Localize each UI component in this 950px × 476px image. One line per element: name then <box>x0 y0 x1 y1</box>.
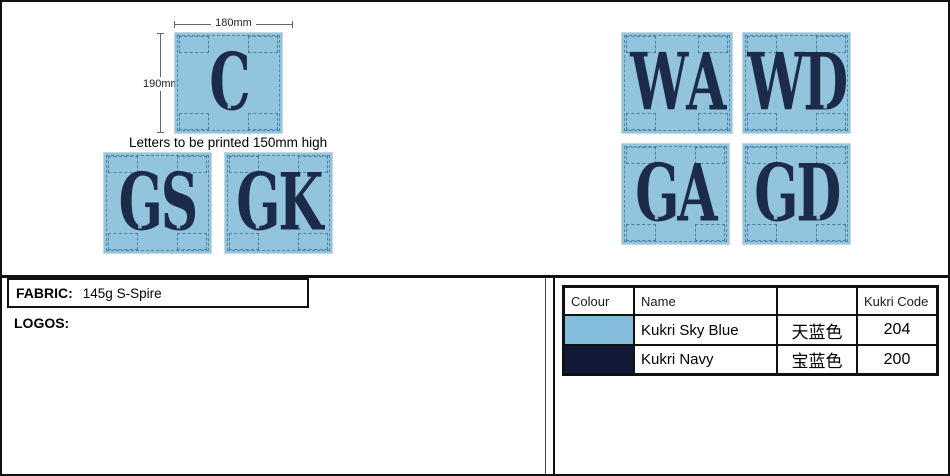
width-dimension-label: 180mm <box>211 17 256 29</box>
fabric-box: FABRIC: 145g S-Spire <box>7 278 309 308</box>
velcro-tab <box>248 113 278 130</box>
table-header-kukri-code: Kukri Code <box>857 287 937 315</box>
velcro-tab <box>179 36 209 53</box>
bib-letters-wd: WD <box>747 30 846 136</box>
bib-letters-wa: WA <box>630 30 724 136</box>
colour-code: 204 <box>857 315 937 345</box>
dimension-tick <box>174 21 175 28</box>
bib-c: C <box>175 33 282 133</box>
bib-gk: GK <box>225 153 332 253</box>
table-header-name: Name <box>634 287 777 315</box>
bib-wd: WD <box>743 33 850 133</box>
fabric-value: 145g S-Spire <box>83 286 162 301</box>
bib-letters-gs: GS <box>119 150 196 256</box>
height-dimension: 190mm <box>152 33 170 133</box>
bib-gs: GS <box>104 153 211 253</box>
section-vertical-line <box>553 278 555 474</box>
dimension-tick <box>157 132 164 133</box>
bib-letters-gk: GK <box>236 150 321 256</box>
colour-name: Kukri Sky Blue <box>634 315 777 345</box>
table-header-chinese <box>777 287 857 315</box>
table-header-colour: Colour <box>564 287 634 315</box>
section-vertical-line <box>545 278 546 474</box>
velcro-tab <box>179 113 209 130</box>
colour-name-chinese: 天蓝色 <box>777 315 857 345</box>
bib-ga: GA <box>622 144 729 244</box>
print-note: Letters to be printed 150mm high <box>129 135 327 150</box>
fabric-label: FABRIC: <box>16 285 73 301</box>
logos-label: LOGOS: <box>14 315 69 331</box>
velcro-tab <box>248 36 278 53</box>
swatch-navy <box>564 345 634 374</box>
bib-letters-ga: GA <box>635 141 715 247</box>
spec-sheet: 180mm 190mm C Letters to be printed 150m… <box>0 0 950 476</box>
dimension-tick <box>157 33 164 34</box>
bib-wa: WA <box>622 33 732 133</box>
colour-name: Kukri Navy <box>634 345 777 374</box>
width-dimension: 180mm <box>174 17 293 31</box>
swatch-sky-blue <box>564 315 634 345</box>
bib-letters-c: C <box>209 30 248 136</box>
bib-gd: GD <box>743 144 850 244</box>
colour-table: Colour Name Kukri Code Kukri Sky Blue 天蓝… <box>562 285 939 376</box>
colour-code: 200 <box>857 345 937 374</box>
dimension-tick <box>292 21 293 28</box>
colour-name-chinese: 宝蓝色 <box>777 345 857 374</box>
bib-letters-gd: GD <box>754 141 839 247</box>
